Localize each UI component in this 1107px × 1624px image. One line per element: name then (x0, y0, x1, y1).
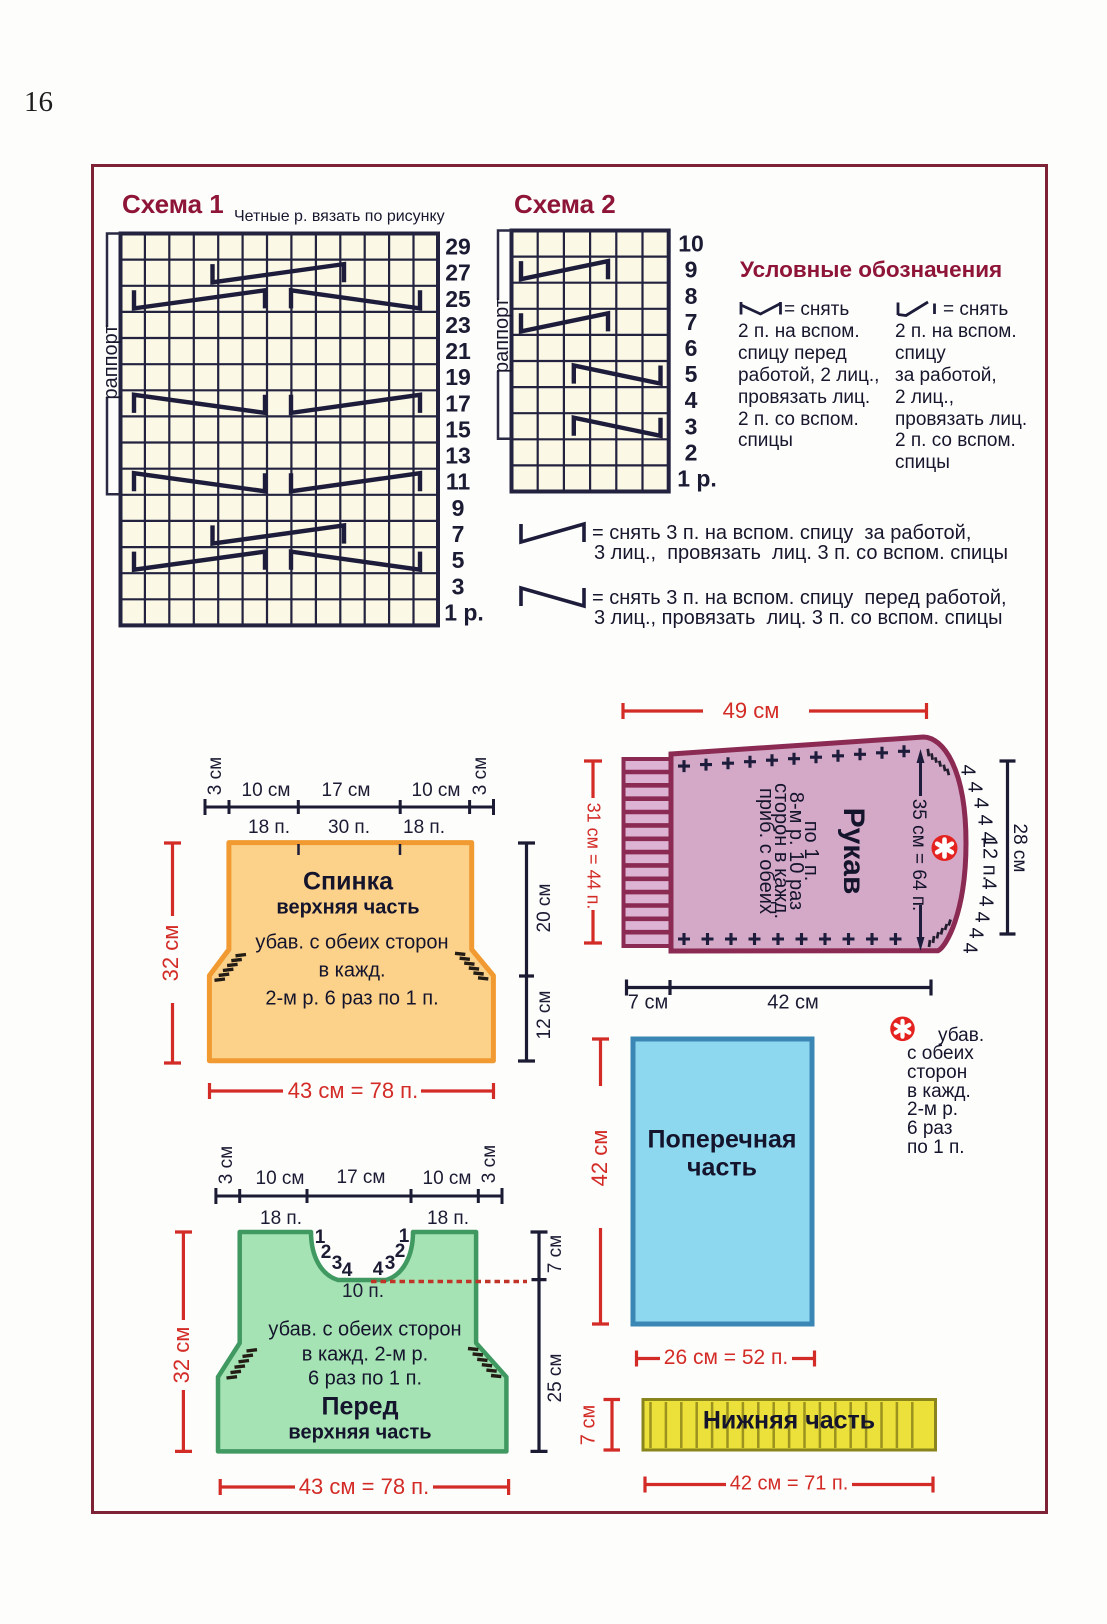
svg-text:7: 7 (452, 521, 465, 547)
svg-text:27: 27 (445, 260, 471, 286)
svg-text:11: 11 (446, 469, 471, 495)
svg-text:21: 21 (445, 338, 471, 364)
svg-text:5: 5 (452, 547, 465, 573)
svg-text:раппорт: раппорт (491, 298, 513, 373)
svg-text:8: 8 (685, 283, 698, 309)
svg-text:7: 7 (685, 309, 698, 335)
svg-text:10: 10 (678, 231, 704, 257)
svg-text:3: 3 (685, 413, 698, 439)
svg-text:9: 9 (685, 257, 698, 283)
svg-text:4: 4 (685, 387, 698, 413)
svg-text:5: 5 (685, 361, 698, 387)
svg-text:9: 9 (452, 495, 465, 521)
svg-text:6: 6 (685, 335, 698, 361)
svg-text:15: 15 (445, 417, 471, 443)
svg-text:2: 2 (685, 439, 698, 465)
svg-text:раппорт: раппорт (100, 325, 122, 400)
svg-text:1 р.: 1 р. (444, 599, 484, 625)
svg-text:19: 19 (445, 364, 471, 390)
svg-text:1 р.: 1 р. (677, 466, 717, 492)
svg-text:17: 17 (445, 390, 471, 416)
svg-text:25: 25 (445, 286, 471, 312)
svg-text:29: 29 (445, 234, 471, 260)
svg-text:23: 23 (445, 312, 471, 338)
svg-text:3: 3 (452, 573, 465, 599)
svg-text:13: 13 (445, 443, 471, 469)
